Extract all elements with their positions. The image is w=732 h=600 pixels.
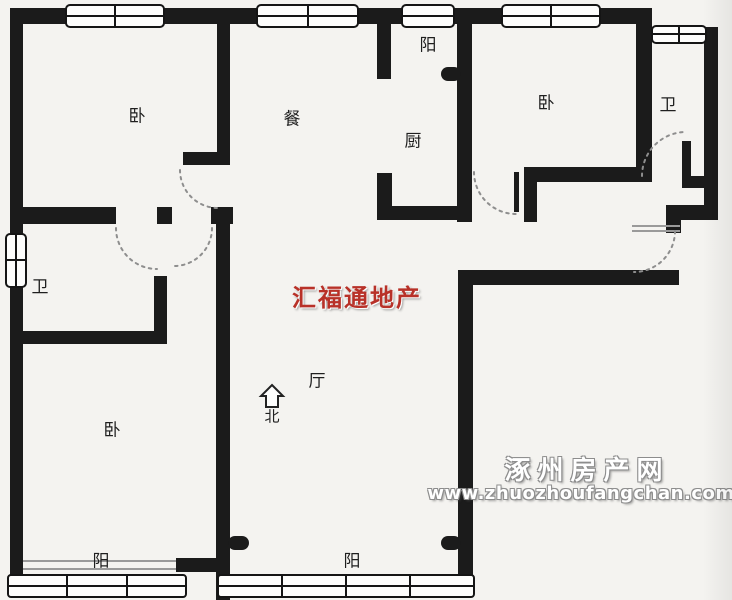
label-balcony-bottom-center: 阳 [344, 554, 361, 571]
door-arc-bed2 [474, 172, 516, 214]
wall-left [10, 8, 23, 582]
north-arrow-icon [261, 385, 283, 407]
entry-threshold-line-2 [632, 230, 680, 232]
watermark-site-url: www.zhuozhoufangchan.com [427, 485, 732, 503]
window-balcony-top [402, 5, 454, 27]
wall-bath2-jamb [682, 141, 691, 188]
label-bedroom-top-right: 卧 [538, 96, 555, 113]
wall-vestibule-step [666, 205, 681, 233]
wall-vestibule-a [690, 176, 718, 188]
wall-bed1-right [217, 8, 230, 160]
wall-kitchen-left-top [377, 8, 391, 79]
label-north: 北 [264, 410, 279, 425]
wall-balcony-divider-knob [441, 67, 461, 81]
label-balcony-bottom-left: 阳 [93, 554, 110, 571]
door-arc-bed1 [180, 170, 218, 208]
wall-bed2-jamb [524, 172, 537, 222]
label-bedroom-top-left: 卧 [129, 109, 146, 126]
wall-bed2-bottom [524, 167, 647, 182]
floorplan-image: 卧 餐 阳 厨 卧 卫 卫 厅 卧 阳 阳 北 汇福通地产 涿州房产网 www.… [0, 0, 732, 600]
wall-mid-b [157, 207, 172, 224]
wall-central [216, 207, 230, 600]
label-balcony-top: 阳 [420, 38, 437, 55]
window-bed1 [66, 5, 164, 27]
wall-entry-bottom [458, 270, 679, 285]
window-bath1-left [6, 234, 26, 287]
label-living-room: 厅 [309, 374, 326, 391]
wall-bath1-bottom [20, 331, 167, 344]
label-bedroom-bottom-left: 卧 [104, 423, 121, 440]
wall-balcony-left-stub [176, 558, 217, 572]
window-bed2 [502, 5, 600, 27]
label-bathroom-top-right: 卫 [660, 98, 677, 115]
label-kitchen: 厨 [405, 134, 422, 151]
window-balcony-center-band [218, 575, 474, 597]
label-dining: 餐 [284, 112, 301, 129]
window-balcony-left-band [8, 575, 186, 597]
entry-threshold-line-1 [632, 225, 680, 227]
door-arc-bath1 [116, 228, 157, 269]
watermark-agency: 汇福通地产 [292, 286, 422, 310]
window-bath2 [652, 26, 706, 43]
watermark-site-name: 涿州房产网 [504, 458, 669, 484]
wall-balcony-knob-right [441, 536, 461, 550]
door-arc-entry [634, 231, 675, 272]
wall-bed2-jamb-thin [514, 172, 519, 212]
wall-balcony-knob-left [228, 536, 249, 550]
wall-kitchen-right [457, 8, 472, 222]
wall-bed1-door-stub [183, 152, 230, 165]
wall-mid-a [10, 207, 116, 224]
door-arc-bed-bl [174, 228, 212, 266]
label-bathroom-left: 卫 [32, 280, 49, 297]
window-dining [257, 5, 358, 27]
